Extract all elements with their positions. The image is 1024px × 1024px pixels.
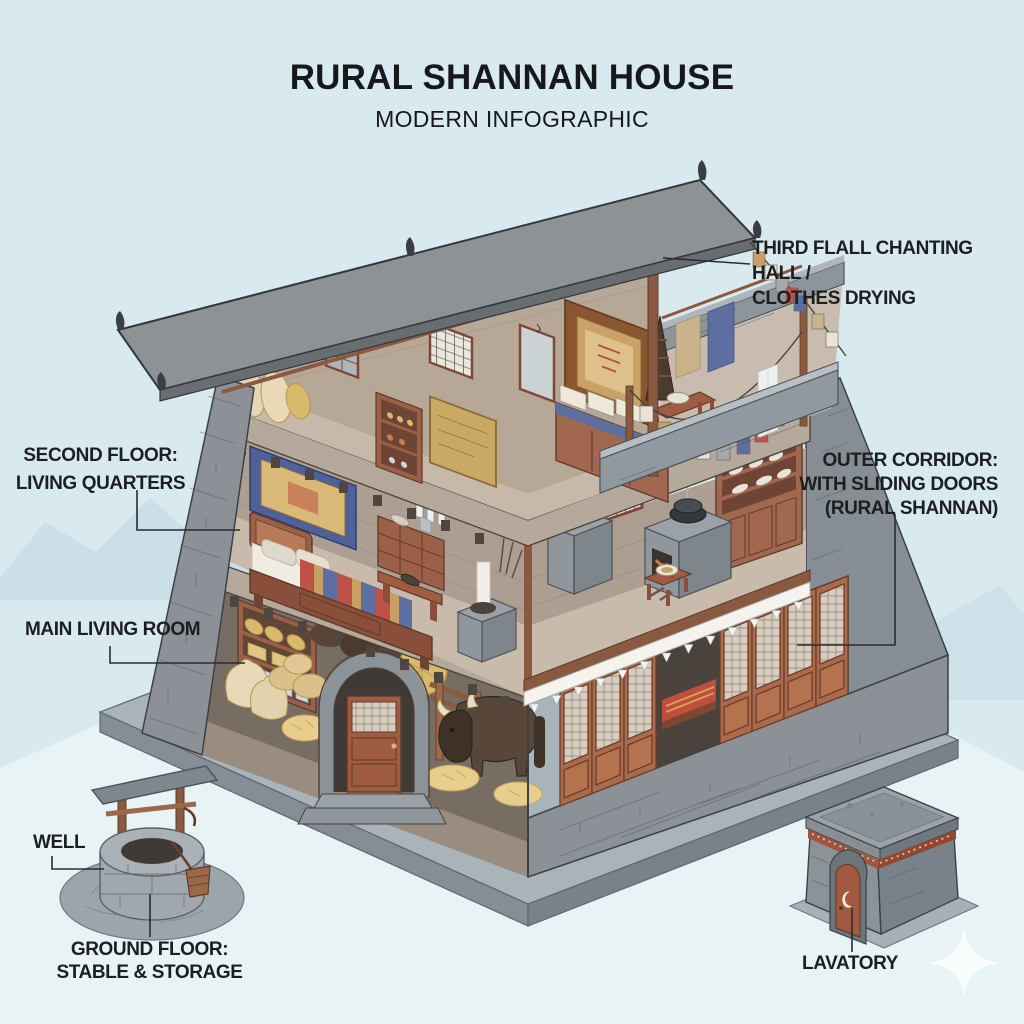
label-line: LIVING QUARTERS — [8, 470, 193, 498]
label-line: SECOND FLOOR: — [8, 442, 193, 470]
label-third-floor: THIRD FLALL CHANTING HALL / CLOTHES DRYI… — [752, 236, 1002, 311]
label-lavatory: LAVATORY — [802, 952, 898, 976]
label-line: WITH SLIDING DOORS — [780, 473, 998, 497]
title-block: RURAL SHANNAN HOUSE MODERN INFOGRAPHIC — [0, 58, 1024, 133]
label-well: WELL — [33, 831, 85, 855]
infographic-canvas: RURAL SHANNAN HOUSE MODERN INFOGRAPHIC T… — [0, 0, 1024, 1024]
label-second-floor: SECOND FLOOR: LIVING QUARTERS — [8, 442, 193, 498]
label-line: STABLE & STORAGE — [52, 961, 247, 984]
label-line: LAVATORY — [802, 952, 898, 976]
label-outer-corridor: OUTER CORRIDOR: WITH SLIDING DOORS (RURA… — [780, 449, 998, 521]
label-line: CLOTHES DRYING — [752, 286, 1002, 311]
label-line: OUTER CORRIDOR: — [780, 449, 998, 473]
label-line: THIRD FLALL CHANTING HALL / — [752, 236, 1002, 286]
label-ground-floor: GROUND FLOOR: STABLE & STORAGE — [52, 938, 247, 984]
page-title: RURAL SHANNAN HOUSE — [0, 58, 1024, 98]
lavatory-door — [830, 850, 867, 944]
corner-post — [524, 544, 532, 700]
label-line: (RURAL SHANNAN) — [780, 497, 998, 521]
page-subtitle: MODERN INFOGRAPHIC — [0, 106, 1024, 133]
label-line: WELL — [33, 831, 85, 855]
label-line: MAIN LIVING ROOM — [25, 618, 200, 642]
label-main-living-room: MAIN LIVING ROOM — [25, 618, 200, 642]
label-line: GROUND FLOOR: — [52, 938, 247, 961]
